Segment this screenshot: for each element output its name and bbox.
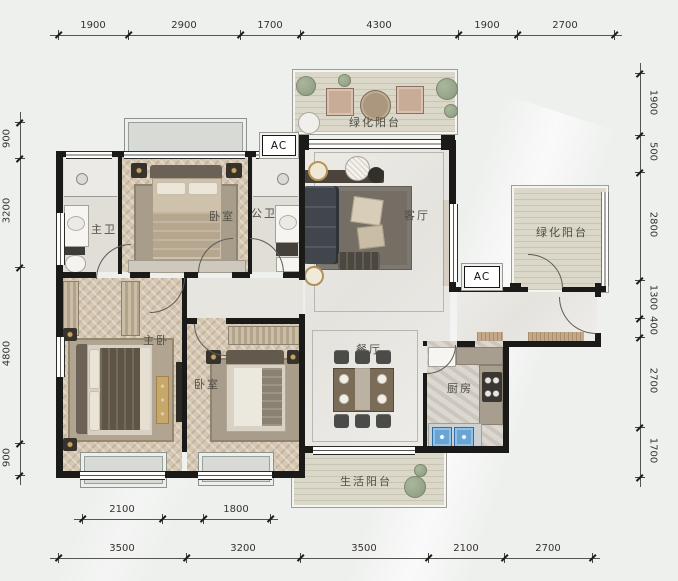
dim-label: 1700 (648, 431, 659, 471)
dim-tick (635, 427, 645, 428)
bed-headboard (150, 165, 222, 178)
corridor-floor (185, 278, 303, 318)
dim-tick (82, 514, 83, 524)
dim-tick (592, 553, 593, 563)
wash-basin (67, 216, 85, 231)
dim-label: 2100 (453, 543, 478, 554)
pillow (89, 391, 100, 431)
dim-label: 1800 (223, 504, 248, 515)
dim-tick (203, 514, 204, 524)
shower-head (76, 173, 88, 185)
wardrobe (228, 326, 300, 345)
floor-lamp (304, 266, 324, 286)
kitchen-sink (432, 427, 452, 447)
dim-label: 1900 (648, 83, 659, 123)
dim-line-bottom-inner (74, 519, 278, 520)
room-label-bottom-balcony: 生活阳台 (340, 473, 392, 489)
dim-tick (240, 30, 241, 40)
dim-tick (635, 135, 645, 136)
dim-label: 3500 (109, 543, 134, 554)
nightstand (131, 163, 147, 178)
dim-tick (504, 553, 505, 563)
room-label-top-balcony: 绿化阳台 (349, 114, 401, 130)
wall-segment (305, 446, 313, 453)
plate (339, 374, 349, 384)
kitchen-doormat (477, 332, 503, 341)
wall-post (510, 283, 521, 292)
room-label-dining: 餐厅 (356, 341, 382, 357)
coffee-table (357, 224, 385, 249)
bed-headboard (226, 350, 284, 364)
wall-segment (182, 278, 187, 452)
window (449, 204, 458, 282)
balcony-sliding-door (313, 446, 415, 455)
stove (482, 372, 502, 402)
wall-segment (503, 341, 601, 347)
dim-tick (15, 122, 25, 123)
room-label-master-bedroom: 主卧 (143, 332, 169, 348)
dining-chair (376, 414, 391, 428)
room-label-kitchen: 厨房 (447, 380, 473, 396)
dim-tick (635, 337, 645, 338)
dining-chair (334, 350, 349, 364)
wall-segment (449, 140, 456, 204)
dim-label: 2100 (109, 504, 134, 515)
sofa (303, 186, 339, 264)
dim-tick (635, 280, 645, 281)
coffee-table (350, 196, 383, 226)
entry-doormat (528, 332, 584, 341)
wall-post (295, 135, 309, 150)
room-label-right-balcony: 绿化阳台 (536, 224, 588, 240)
dim-tick (428, 553, 429, 563)
wall-segment (415, 446, 423, 453)
dining-chair (334, 414, 349, 428)
bed-blanket (262, 368, 282, 426)
wall-segment (232, 272, 250, 278)
dim-label: 4800 (2, 334, 13, 374)
tv-bench (338, 252, 380, 270)
dim-label: 1700 (257, 20, 282, 31)
floorplan-canvas: 1900 2900 1700 4300 1900 2700 900 3200 4… (0, 0, 678, 581)
room-label-bedroom-bottom: 卧室 (194, 376, 220, 392)
dim-label: 900 (2, 438, 13, 478)
dining-chair (355, 414, 370, 428)
dim-label: 1900 (80, 20, 105, 31)
dim-tick (15, 267, 25, 268)
wall-segment (283, 272, 305, 278)
dim-line-top (50, 35, 622, 36)
dim-tick (635, 318, 645, 319)
plate (377, 374, 387, 384)
bay-window-bedroom-bottom (198, 452, 274, 486)
nightstand (287, 350, 299, 364)
washer (276, 243, 298, 256)
kitchen-counter-north (456, 347, 503, 365)
plant (444, 104, 458, 118)
dim-tick (635, 477, 645, 478)
dim-label: 2900 (171, 20, 196, 31)
dim-tick (614, 30, 615, 40)
pillow (89, 349, 100, 389)
wall-segment (130, 272, 150, 278)
dim-tick (635, 73, 645, 74)
shower-zone (64, 158, 117, 197)
dim-label: 500 (648, 132, 659, 172)
dim-label: 2700 (552, 20, 577, 31)
planter-square (326, 88, 354, 116)
dim-tick (15, 158, 25, 159)
plant (404, 476, 426, 498)
dim-tick (300, 553, 301, 563)
plant (296, 76, 316, 96)
dim-label: 3500 (351, 543, 376, 554)
dim-label: 4300 (366, 20, 391, 31)
dim-tick (270, 514, 271, 524)
shower-zone (253, 158, 298, 197)
bed-sheet (234, 368, 262, 426)
kitchen-sink (454, 427, 474, 447)
balcony-sliding-door (309, 139, 441, 149)
pillow (188, 182, 218, 195)
table-lamp (345, 156, 370, 181)
dim-label: 2700 (648, 361, 659, 401)
window (198, 471, 272, 480)
window (56, 337, 65, 377)
nightstand (63, 438, 77, 451)
corner-planter (298, 112, 320, 134)
window (601, 192, 609, 286)
room-label-master-bath: 主卫 (91, 221, 117, 237)
wardrobe (121, 281, 140, 336)
room-label-bedroom-top: 卧室 (209, 208, 235, 224)
nightstand (226, 163, 242, 178)
wall-segment (299, 314, 305, 478)
ac-unit-top: AC (262, 135, 296, 156)
planter-square (396, 86, 424, 114)
dim-label: 1900 (474, 20, 499, 31)
toilet-bowl (65, 255, 86, 273)
pillow (156, 182, 186, 195)
bay-window-master-bedroom (80, 452, 167, 488)
wall-segment (299, 140, 305, 280)
dim-line-left (20, 112, 21, 485)
dim-tick (58, 30, 59, 40)
wall-segment (503, 347, 509, 452)
wall-segment (449, 282, 456, 292)
room-label-public-bath: 公卫 (251, 205, 277, 221)
room-label-living: 客厅 (404, 207, 430, 223)
dim-tick (458, 30, 459, 40)
dim-label: 3200 (230, 543, 255, 554)
decor-sphere (368, 167, 384, 183)
wall-segment (226, 318, 303, 324)
wash-basin (279, 215, 297, 230)
toilet-tank (64, 247, 85, 255)
dim-tick (15, 443, 25, 444)
window (66, 151, 112, 159)
plant (436, 78, 458, 100)
dim-line-bottom-outer (50, 558, 600, 559)
nightstand (63, 328, 77, 341)
dim-tick (300, 30, 301, 40)
wall-segment (423, 446, 509, 453)
bed-sheet-fold (140, 348, 150, 430)
dim-tick (635, 172, 645, 173)
window (80, 471, 165, 480)
bed-headboard (76, 344, 87, 434)
wall-segment (423, 373, 427, 452)
dim-label: 900 (2, 119, 13, 159)
dim-label: 3200 (2, 191, 13, 231)
ac-unit-side: AC (464, 266, 500, 288)
dim-tick (58, 553, 59, 563)
dim-label: 2800 (648, 205, 659, 245)
bed-blanket (100, 348, 140, 430)
table-runner (355, 368, 370, 410)
dim-tick (128, 30, 129, 40)
bench (156, 376, 169, 424)
gold-lamp (308, 161, 328, 181)
window (124, 151, 245, 159)
window (56, 213, 65, 265)
dim-tick (15, 475, 25, 476)
dim-label: 2700 (535, 543, 560, 554)
dim-label: 400 (648, 306, 659, 346)
dim-tick (162, 514, 163, 524)
wall-segment (457, 341, 475, 347)
plate (377, 394, 387, 404)
shower-head (277, 173, 289, 185)
dim-tick (517, 30, 518, 40)
dim-tick (186, 553, 187, 563)
wall-segment (56, 151, 63, 478)
wall-segment (56, 272, 96, 278)
plant (338, 74, 351, 87)
plate (339, 394, 349, 404)
